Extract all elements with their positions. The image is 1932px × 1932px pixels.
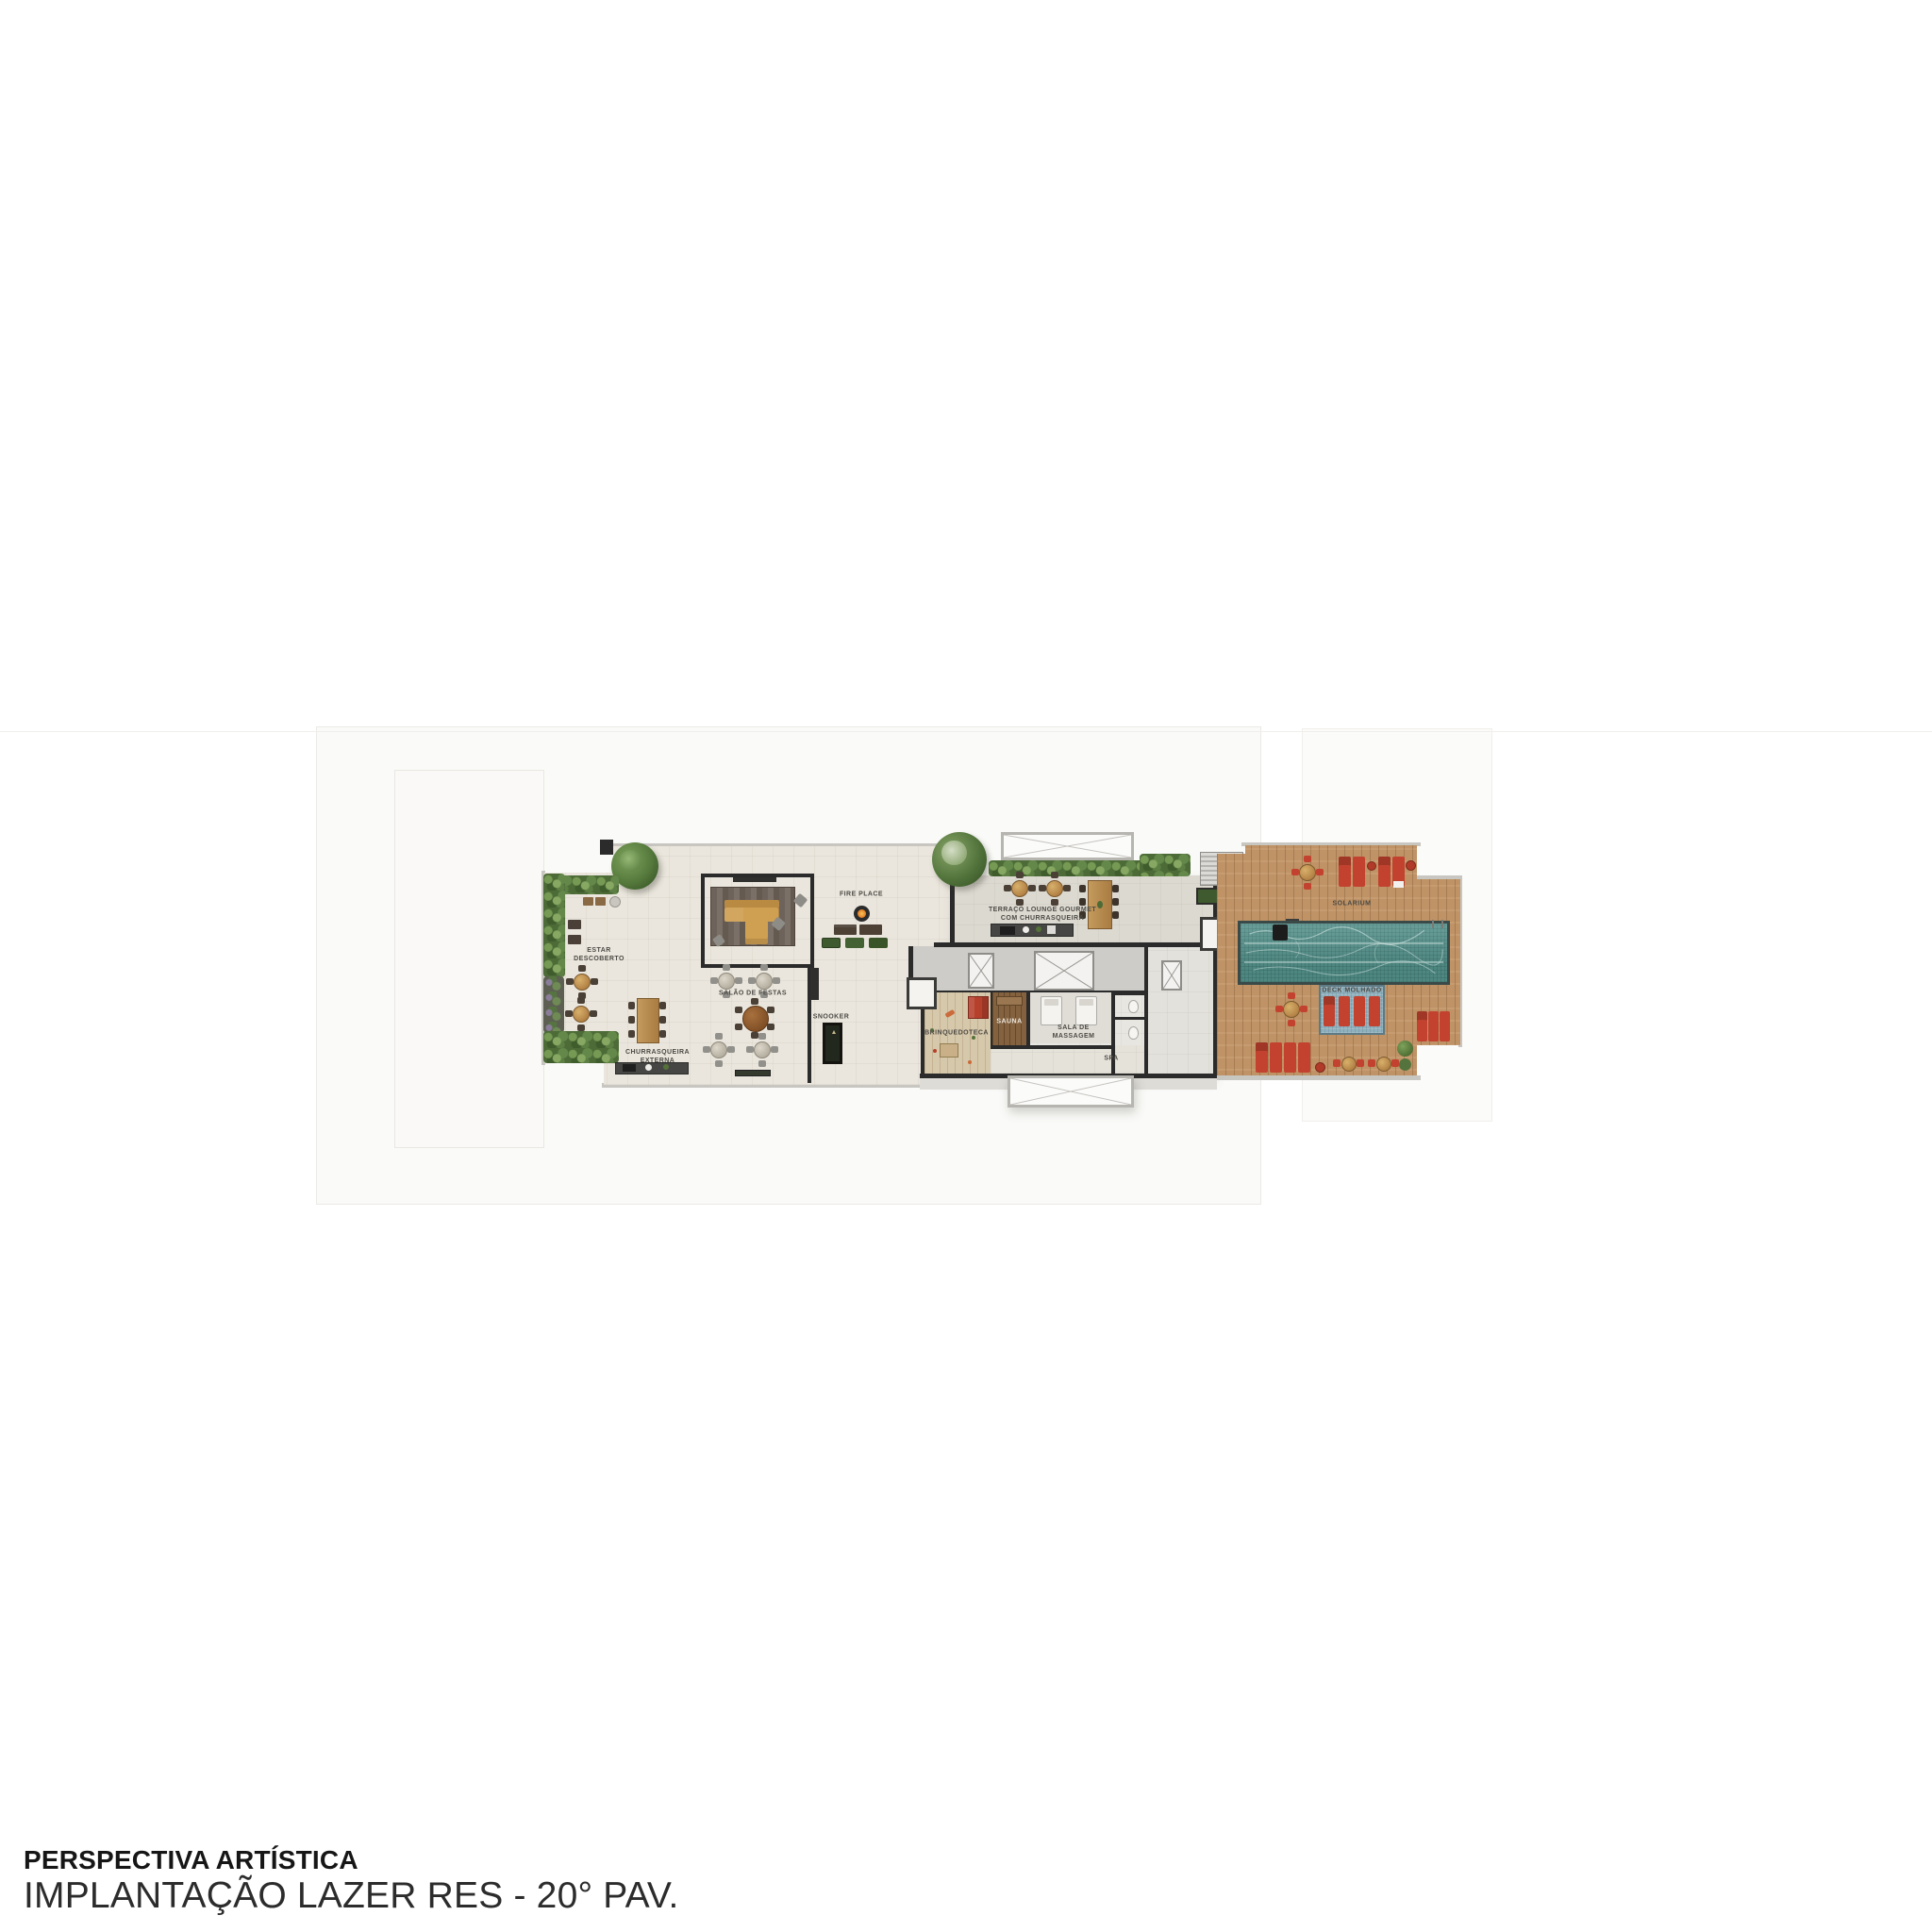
pantry-cabinet [907, 977, 937, 1009]
ghost-floor-outline-left [394, 770, 544, 1148]
label-spa: SPA [1104, 1054, 1118, 1062]
bistro-chairs [1333, 1059, 1341, 1067]
planter-boxes [822, 938, 841, 948]
chairs [1016, 872, 1024, 878]
loveseat-bench [583, 897, 593, 906]
label-fire-place: FIRE PLACE [840, 890, 883, 898]
massage-bed [1075, 996, 1097, 1025]
billiard-balls [832, 1030, 836, 1034]
chairs [760, 964, 768, 971]
long-table-chairs [628, 1002, 635, 1009]
label-deck-molhado: DECK MOLHADO [1322, 986, 1381, 994]
bistro-table [1376, 1057, 1391, 1072]
label-estar-descoberto: ESTARDESCOBERTO [574, 946, 625, 963]
hedge-left-lavender [543, 976, 564, 1033]
label-snooker: SNOOKER [813, 1012, 850, 1021]
pillow [1044, 999, 1058, 1006]
elevator-shaft [968, 953, 994, 989]
wall-core-top [934, 942, 1217, 947]
long-dining-table [637, 998, 659, 1043]
playroom-red-shelf [968, 996, 989, 1019]
pool-ladder [1432, 920, 1434, 928]
playroom-table [940, 1043, 958, 1058]
tree-flowering [932, 832, 987, 887]
table [710, 1041, 727, 1058]
table [718, 973, 735, 990]
party-table-set [746, 1034, 778, 1066]
label-salao-de-festas: SALÃO DE FESTAS [719, 989, 787, 997]
wet-deck-lounger [1324, 996, 1335, 1026]
sun-lounger-right [1417, 1011, 1427, 1041]
skylight-top [1001, 832, 1134, 860]
deck-pot [1315, 1062, 1325, 1073]
hedge-bottom-left-corner [543, 1031, 619, 1063]
label-sala-massagem: SALA DEMASSAGEM [1053, 1024, 1095, 1041]
hedge-left-column [543, 874, 565, 977]
ghost-horizon-line [0, 731, 1932, 732]
spa-corridor [991, 1045, 1144, 1074]
parapet-deck-step [1415, 875, 1462, 879]
toilet [1128, 1026, 1139, 1040]
elevator-shaft-main [1034, 951, 1094, 991]
table [1011, 880, 1028, 897]
table [573, 1006, 590, 1023]
outdoor-armchair [568, 920, 581, 929]
sun-lounger-row [1256, 1042, 1268, 1073]
solarium-table-set [1291, 857, 1324, 889]
table [1299, 864, 1316, 881]
wall-spa-top [989, 1045, 1115, 1049]
sideboard-planter [735, 1070, 771, 1076]
label-brinquedoteca: BRINQUEDOTECA [924, 1028, 989, 1037]
wall-bath-divider [1115, 1017, 1145, 1020]
counter-sink [1023, 926, 1029, 933]
wall-core-right [1144, 946, 1148, 1075]
tv-console [733, 877, 776, 882]
fireplace [854, 906, 870, 922]
chairs [715, 1033, 723, 1040]
toilet [1128, 1000, 1139, 1013]
table [756, 973, 773, 990]
chimney-pillar [600, 840, 613, 855]
fire [858, 909, 866, 918]
fire-bench [834, 924, 857, 935]
skylight-bottom [1008, 1075, 1134, 1108]
label-terraco-gourmet: TERRAÇO LOUNGE GOURMETCOM CHURRASQUEIRA [989, 906, 1096, 923]
chairs [1288, 992, 1295, 999]
elevator-lobby [911, 946, 1146, 993]
elevator-shaft-right [1161, 960, 1182, 991]
hedge-right-of-skylight [1140, 854, 1191, 876]
chairs [758, 1033, 766, 1040]
deck-bush [1397, 1041, 1413, 1057]
chairs [577, 997, 585, 1004]
poolside-shower [1273, 924, 1288, 941]
party-table-set [703, 1034, 735, 1066]
caption-subtitle: IMPLANTAÇÃO LAZER RES - 20° PAV. [24, 1875, 679, 1917]
counter-grill [1000, 926, 1015, 935]
chairs [1304, 856, 1311, 862]
table [574, 974, 591, 991]
round-side-table [609, 896, 621, 908]
games-kitchenette [810, 968, 819, 1000]
counter-plant [1036, 926, 1041, 932]
sauna-bench [996, 996, 1023, 1006]
gourmet-table-set [1004, 873, 1036, 905]
pool [1238, 921, 1450, 985]
sun-lounger [1378, 857, 1391, 887]
wet-deck-table-set [1275, 993, 1307, 1025]
snooker-table [823, 1023, 842, 1064]
deck-pot [1406, 860, 1416, 871]
large-table-chairs [751, 998, 758, 1005]
table [1046, 880, 1063, 897]
sun-lounger [1339, 857, 1351, 887]
sofa-chaise [745, 921, 768, 944]
pillow [1079, 999, 1093, 1006]
grill [623, 1064, 636, 1072]
gourmet-long-table-chairs [1079, 885, 1086, 892]
caption-title: PERSPECTIVA ARTÍSTICA [24, 1845, 358, 1875]
table [754, 1041, 771, 1058]
label-sauna: SAUNA [996, 1017, 1022, 1025]
outdoor-table-set [565, 998, 597, 1030]
shower-arm [1286, 919, 1299, 921]
bistro-chairs [1368, 1059, 1375, 1067]
label-solarium: SOLARIUM [1333, 899, 1372, 908]
towel [1393, 881, 1404, 888]
gourmet-counter [991, 924, 1074, 937]
artistic-floor-plan-page: ESTARDESCOBERTO CHURRASQUEIRAEXTERNA SAL… [0, 0, 1932, 1932]
chairs [723, 964, 730, 971]
large-round-table [742, 1006, 769, 1032]
massage-bed [1041, 996, 1062, 1025]
outdoor-table-set [566, 966, 598, 998]
chairs [578, 965, 586, 972]
gourmet-table-set [1039, 873, 1071, 905]
chairs [1051, 872, 1058, 878]
centerpiece [1097, 901, 1103, 908]
table [1283, 1001, 1300, 1018]
bistro-table [1341, 1057, 1357, 1072]
counter-appliance [1047, 925, 1056, 934]
side-table-red [1367, 861, 1376, 871]
label-churrasqueira-externa: CHURRASQUEIRAEXTERNA [625, 1048, 690, 1065]
sofa-seat [724, 908, 779, 922]
parapet-deck-bottom [1217, 1075, 1421, 1080]
